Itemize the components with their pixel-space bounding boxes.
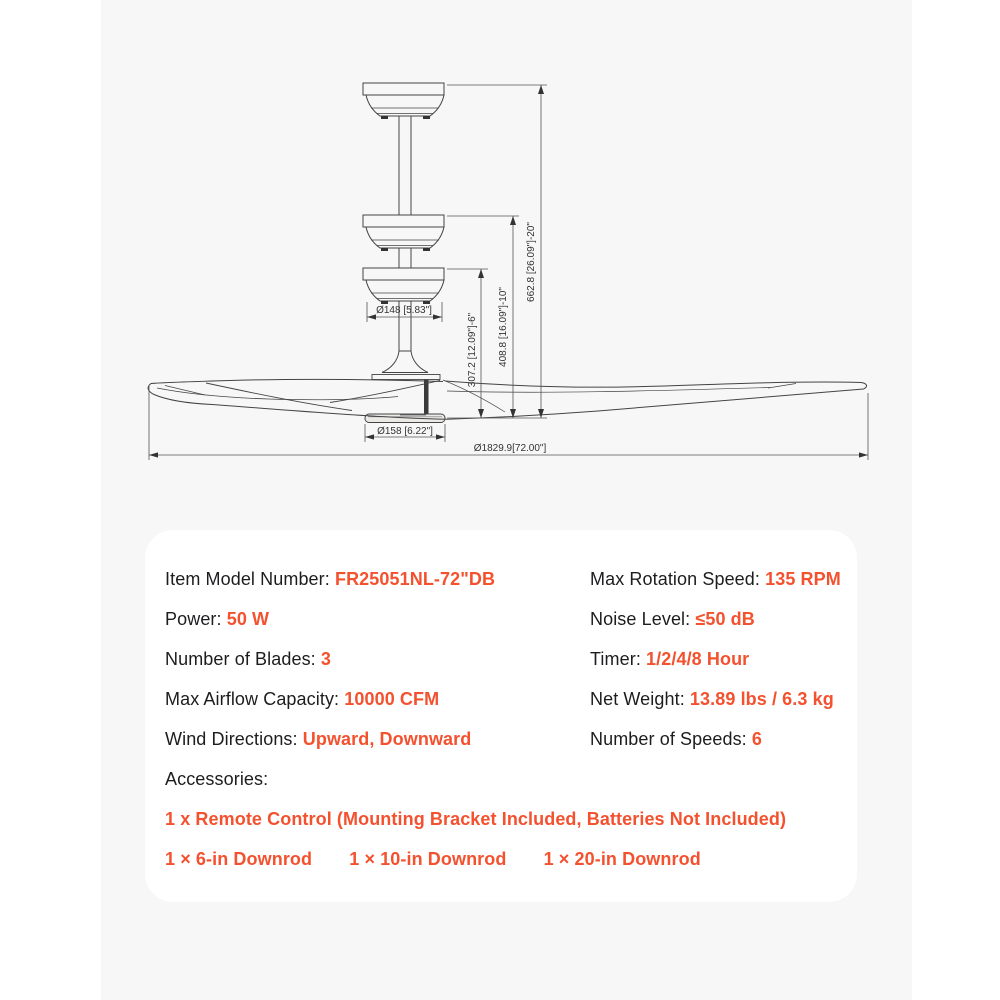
spec-label: Net Weight: [590, 689, 690, 709]
spec-label: Wind Directions: [165, 729, 303, 749]
spec-airflow: Max Airflow Capacity: 10000 CFM [165, 688, 439, 710]
spec-label: Noise Level: [590, 609, 695, 629]
dim-label-height-20in: 662.8 [26.09"]-20" [526, 222, 537, 302]
spec-label: Number of Blades: [165, 649, 321, 669]
accessory-remote-control: 1 x Remote Control (Mounting Bracket Inc… [165, 808, 786, 830]
spec-value: FR25051NL-72"DB [335, 569, 495, 589]
canopy-bottom [363, 268, 444, 304]
dim-label-height-10in: 408.8 [16.09"]-10" [498, 287, 509, 367]
canopy-middle [363, 215, 444, 251]
fan-blades [148, 379, 866, 419]
spec-value: ≤50 dB [695, 609, 755, 629]
spec-label: Max Airflow Capacity: [165, 689, 344, 709]
spec-label: Max Rotation Speed: [590, 569, 765, 589]
spec-value: 50 W [227, 609, 269, 629]
spec-item-model: Item Model Number: FR25051NL-72"DB [165, 568, 495, 590]
spec-value: 3 [321, 649, 331, 669]
accessory-text: 1 x Remote Control (Mounting Bracket Inc… [165, 809, 786, 829]
spec-accessories-heading: Accessories: [165, 768, 268, 790]
spec-value: 6 [752, 729, 762, 749]
spec-noise-level: Noise Level: ≤50 dB [590, 608, 755, 630]
spec-label: Timer: [590, 649, 646, 669]
accessory-downrod-10in: 1 × 10-in Downrod [349, 849, 506, 869]
spec-value: Upward, Downward [303, 729, 472, 749]
spec-wind-directions: Wind Directions: Upward, Downward [165, 728, 471, 750]
dim-label-blade-sweep: Ø1829.9[72.00"] [474, 443, 547, 454]
spec-label: Accessories: [165, 769, 268, 789]
fan-dimension-drawing: Ø148 [5.83"] Ø158 [6.22"] Ø1829.9[72.00"… [0, 0, 1000, 510]
spec-label: Number of Speeds: [590, 729, 752, 749]
spec-timer: Timer: 1/2/4/8 Hour [590, 648, 749, 670]
spec-rotation-speed: Max Rotation Speed: 135 RPM [590, 568, 841, 590]
dimension-lines [149, 85, 868, 460]
motor-housing [365, 351, 445, 423]
spec-label: Item Model Number: [165, 569, 335, 589]
spec-label: Power: [165, 609, 227, 629]
spec-power: Power: 50 W [165, 608, 269, 630]
dim-label-motor-diameter: Ø158 [6.22"] [377, 426, 433, 437]
spec-value: 13.89 lbs / 6.3 kg [690, 689, 834, 709]
spec-value: 1/2/4/8 Hour [646, 649, 749, 669]
spec-blades: Number of Blades: 3 [165, 648, 331, 670]
spec-value: 135 RPM [765, 569, 841, 589]
canopy-top [363, 83, 444, 119]
accessory-downrods: 1 × 6-in Downrod 1 × 10-in Downrod 1 × 2… [165, 848, 733, 870]
spec-card: Item Model Number: FR25051NL-72"DB Power… [145, 530, 857, 902]
dim-label-canopy-diameter: Ø148 [5.83"] [376, 305, 432, 316]
dimension-arrows [149, 85, 868, 458]
accessory-downrod-20in: 1 × 20-in Downrod [544, 849, 701, 869]
spec-value: 10000 CFM [344, 689, 439, 709]
spec-net-weight: Net Weight: 13.89 lbs / 6.3 kg [590, 688, 834, 710]
dim-label-height-6in: 307.2 [12.09"]-6" [467, 312, 478, 387]
accessory-downrod-6in: 1 × 6-in Downrod [165, 849, 312, 869]
spec-speeds: Number of Speeds: 6 [590, 728, 762, 750]
